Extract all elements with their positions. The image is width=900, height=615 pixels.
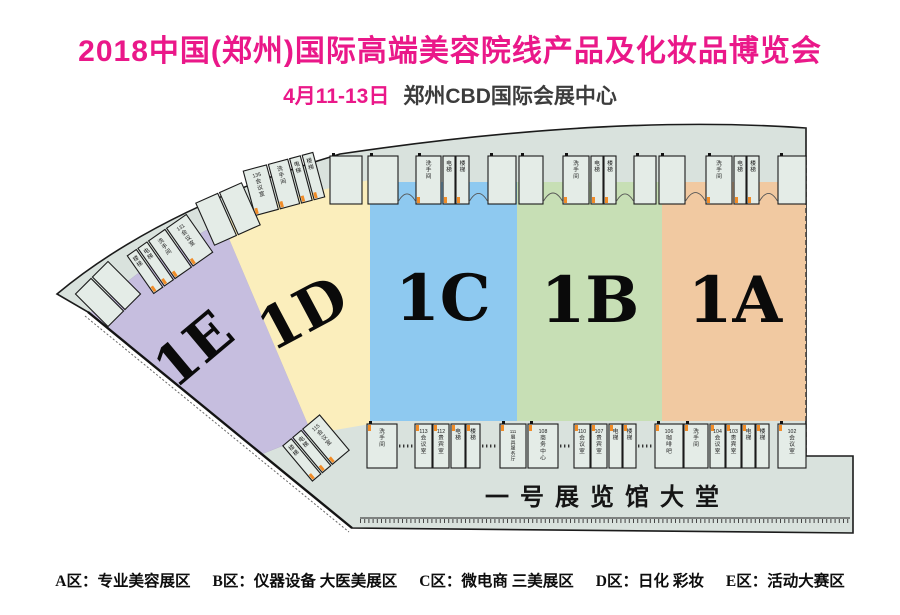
booth-label: 楼 (750, 159, 756, 167)
expo-poster: 2018中国(郑州)国际高端美容院线产品及化妆品博览会 4月11-13日郑州CB… (0, 0, 900, 615)
booth-label: 议 (579, 440, 585, 448)
booth-label: 楼 (607, 159, 613, 167)
booth-label: 梯 (737, 166, 743, 174)
booth-label: 电 (446, 159, 452, 167)
booth-label: 104 (713, 429, 722, 435)
booth-label: 107 (595, 429, 604, 435)
booth-label: 102 (788, 429, 797, 435)
booth-label: 商 (540, 434, 546, 442)
booth-label: 手 (426, 166, 432, 174)
legend-item-d: D区：日化 彩妆 (596, 573, 704, 590)
booth (519, 156, 543, 204)
booth-label: 梯 (607, 166, 613, 174)
booth-label: 洗 (426, 159, 432, 167)
booth (778, 156, 806, 204)
zone-label-1b: 1B (541, 263, 640, 338)
booth-label: 室 (579, 447, 585, 455)
booth-label: 间 (426, 172, 432, 180)
booth-label: 宾 (596, 440, 602, 448)
booth-label: 电 (594, 159, 600, 167)
booth-label: 议 (715, 440, 721, 448)
poster-header: 2018中国(郑州)国际高端美容院线产品及化妆品博览会 4月11-13日郑州CB… (0, 0, 900, 110)
expo-venue: 郑州CBD国际会展中心 (403, 85, 617, 108)
booth-label: 电 (613, 427, 619, 435)
booth-label: 楼 (470, 427, 476, 435)
booth-label: 梯 (455, 434, 461, 442)
booth-label: 梯 (613, 434, 619, 442)
booth-label: 梯 (446, 166, 452, 174)
booth-label: 洗 (573, 159, 579, 167)
booth-label: 务 (540, 440, 546, 448)
booth-label: 啡 (666, 440, 672, 448)
expo-title: 2018中国(郑州)国际高端美容院线产品及化妆品博览会 (0, 26, 900, 70)
booth-label: 103 (729, 429, 738, 435)
booth-label: 贵 (596, 434, 602, 442)
booth-label: 务 (511, 450, 516, 457)
booth-label: 110 (578, 429, 586, 435)
booth-label: 电 (737, 159, 743, 167)
booth-label: 室 (789, 447, 795, 455)
floor-plan-map: 洗手间电梯楼梯洗手间电梯楼梯洗手间电梯楼梯洗手间113会议室112贵宾室电梯楼梯… (0, 116, 900, 561)
booth-label: 具 (511, 440, 516, 446)
booth-label: 梯 (460, 166, 466, 174)
booth-label: 手 (573, 166, 579, 174)
booth-label: 手 (379, 434, 385, 442)
booth (330, 156, 362, 204)
booth-label: 服 (511, 446, 516, 452)
booth-label: 梯 (470, 434, 476, 442)
booth-label: 展 (511, 435, 516, 441)
zone-label-1a: 1A (688, 263, 784, 338)
booth-label: 洗 (379, 427, 385, 435)
legend-item-c: C区：微电商 三美展区 (419, 573, 574, 590)
booth (659, 156, 685, 204)
booth-label: 梯 (750, 166, 756, 174)
expo-dates: 4月11-13日 (283, 85, 389, 108)
legend-item-b: B区：仪器设备 大医美展区 (212, 573, 397, 590)
booth-label: 111 (510, 429, 517, 434)
booth-label: 会 (421, 434, 427, 442)
lobby-label: 一号展览馆大堂 (485, 483, 730, 511)
booth-label: 电 (455, 427, 461, 435)
booth-label: 108 (539, 429, 548, 435)
booth-label: 间 (379, 440, 385, 448)
booth-label: 贵 (438, 434, 444, 442)
booth-label: 洗 (716, 159, 722, 167)
booth-label: 室 (421, 447, 427, 455)
booth-label: 室 (596, 447, 602, 455)
booth-label: 室 (731, 447, 737, 455)
booth-label: 手 (693, 434, 699, 442)
booth-label: 梯 (746, 434, 752, 442)
legend-item-a: A区：专业美容展区 (55, 573, 190, 590)
booth-label: 106 (665, 429, 674, 435)
booth (368, 156, 398, 204)
booth-label: 113 (419, 429, 427, 435)
booth (634, 156, 656, 204)
booth-label: 电 (746, 427, 752, 435)
booth-label: 间 (573, 172, 579, 180)
booth (488, 156, 516, 204)
booth-label: 梯 (760, 434, 766, 442)
booth-label: 会 (715, 434, 721, 442)
booth-label: 室 (438, 447, 444, 455)
booth-label: 间 (693, 440, 699, 448)
booth-label: 洗 (693, 427, 699, 435)
booth-label: 吧 (666, 448, 672, 455)
zone-legend: A区：专业美容展区B区：仪器设备 大医美展区C区：微电商 三美展区D区：日化 彩… (0, 569, 900, 591)
booth-label: 会 (789, 434, 795, 442)
booth-label: 室 (715, 447, 721, 455)
legend-item-e: E区：活动大赛区 (726, 573, 845, 590)
booth-label: 咖 (666, 434, 672, 442)
booth-label: 心 (540, 454, 546, 461)
booth-label: 楼 (460, 159, 466, 167)
booth-label: 议 (421, 440, 427, 448)
booth-label: 厅 (511, 457, 516, 463)
booth-label: 议 (789, 440, 795, 448)
booth-label: 中 (540, 447, 546, 455)
booth-label: 梯 (594, 166, 600, 174)
booth-label: 间 (716, 172, 722, 180)
booth-label: 贵 (731, 434, 737, 442)
booth-label: 梯 (627, 434, 633, 442)
booth-label: 楼 (760, 427, 766, 435)
booth-label: 手 (716, 166, 722, 174)
booth-label: 会 (579, 434, 585, 442)
booth-label: 楼 (627, 427, 633, 435)
expo-subtitle: 4月11-13日郑州CBD国际会展中心 (0, 80, 900, 110)
zone-label-1c: 1C (395, 261, 490, 336)
booth-label: 112 (437, 429, 445, 435)
booth-label: 宾 (438, 440, 444, 448)
booth-label: 宾 (731, 440, 737, 448)
